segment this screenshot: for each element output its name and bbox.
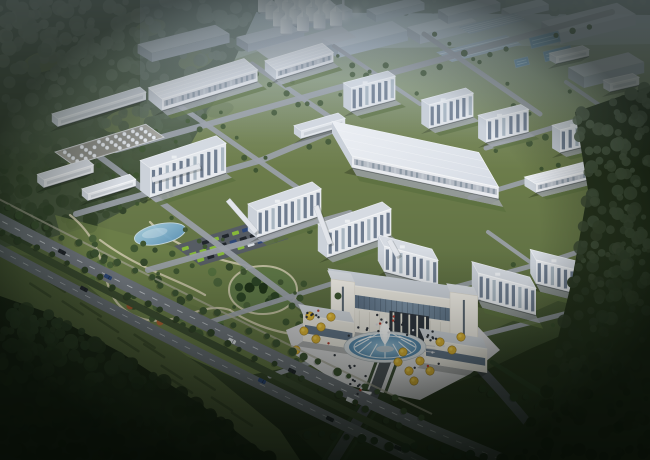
aerial-industrial-park-rendering xyxy=(0,0,650,460)
atmosphere-overlays xyxy=(0,0,650,460)
vignette-overlay xyxy=(0,0,650,460)
rendering-canvas xyxy=(0,0,650,460)
